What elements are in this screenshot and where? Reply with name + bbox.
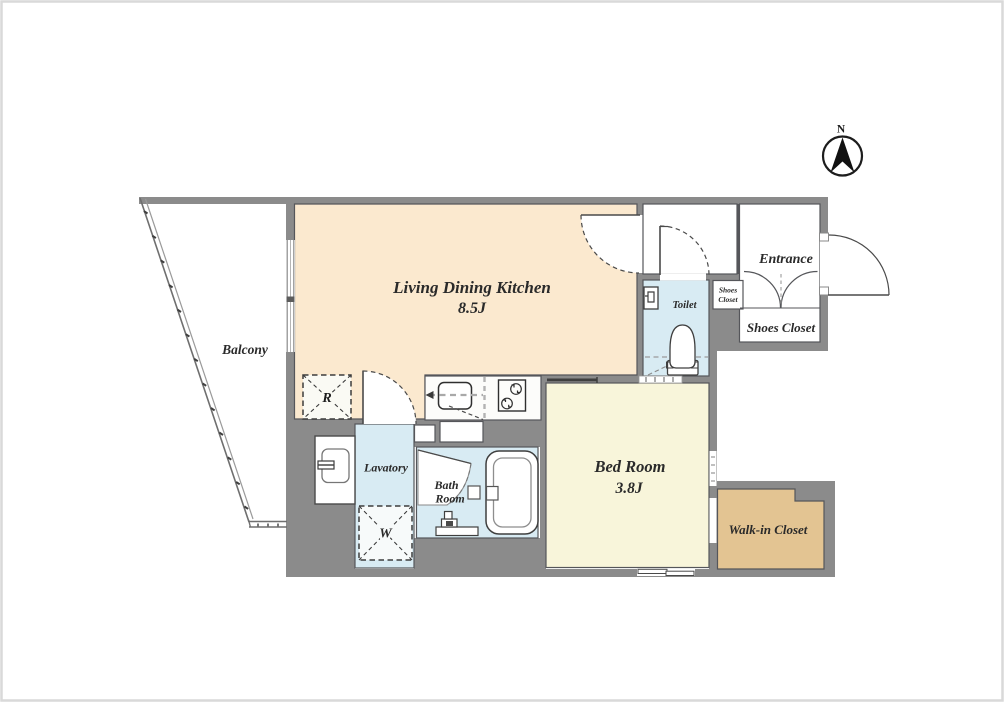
svg-text:N: N [837, 124, 846, 136]
svg-text:R: R [321, 391, 331, 406]
svg-text:Bath: Bath [433, 478, 458, 492]
svg-text:Living Dining Kitchen: Living Dining Kitchen [392, 278, 551, 297]
svg-text:Bed Room: Bed Room [593, 457, 665, 476]
svg-text:Shoes: Shoes [719, 286, 737, 295]
svg-text:Closet: Closet [718, 295, 738, 304]
svg-text:Shoes Closet: Shoes Closet [747, 320, 816, 335]
svg-text:Lavatory: Lavatory [363, 461, 409, 475]
svg-text:Entrance: Entrance [758, 252, 813, 267]
svg-text:3.8J: 3.8J [614, 480, 643, 497]
svg-text:Walk-in Closet: Walk-in Closet [729, 522, 808, 537]
svg-text:8.5J: 8.5J [458, 300, 487, 317]
svg-text:Toilet: Toilet [672, 300, 697, 311]
svg-text:Balcony: Balcony [221, 342, 269, 357]
svg-text:Room: Room [434, 492, 464, 506]
svg-text:W: W [379, 527, 393, 542]
